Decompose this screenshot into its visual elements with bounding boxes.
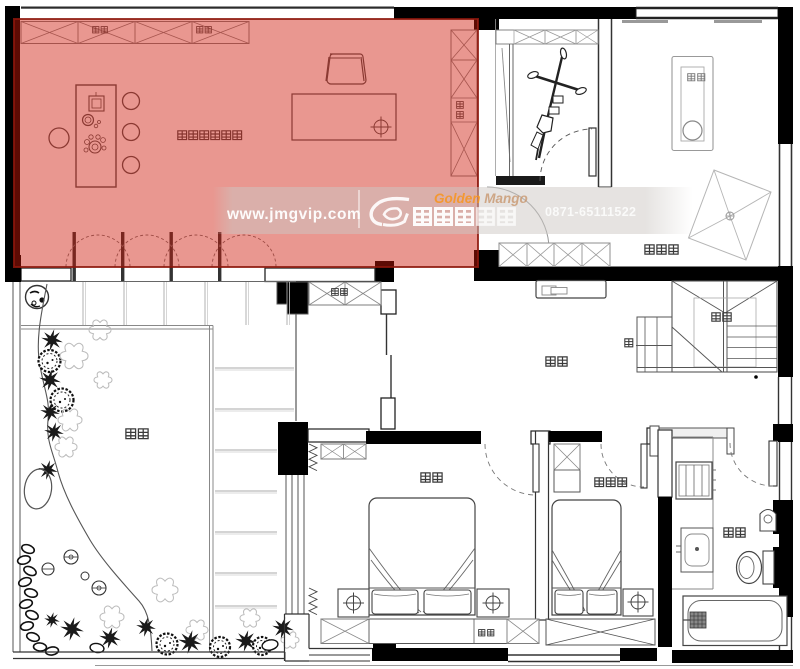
svg-text:Golden Mango: Golden Mango: [434, 191, 528, 206]
svg-text:0871-65111522: 0871-65111522: [545, 205, 636, 219]
svg-text:www.jmgvip.com: www.jmgvip.com: [226, 206, 361, 223]
